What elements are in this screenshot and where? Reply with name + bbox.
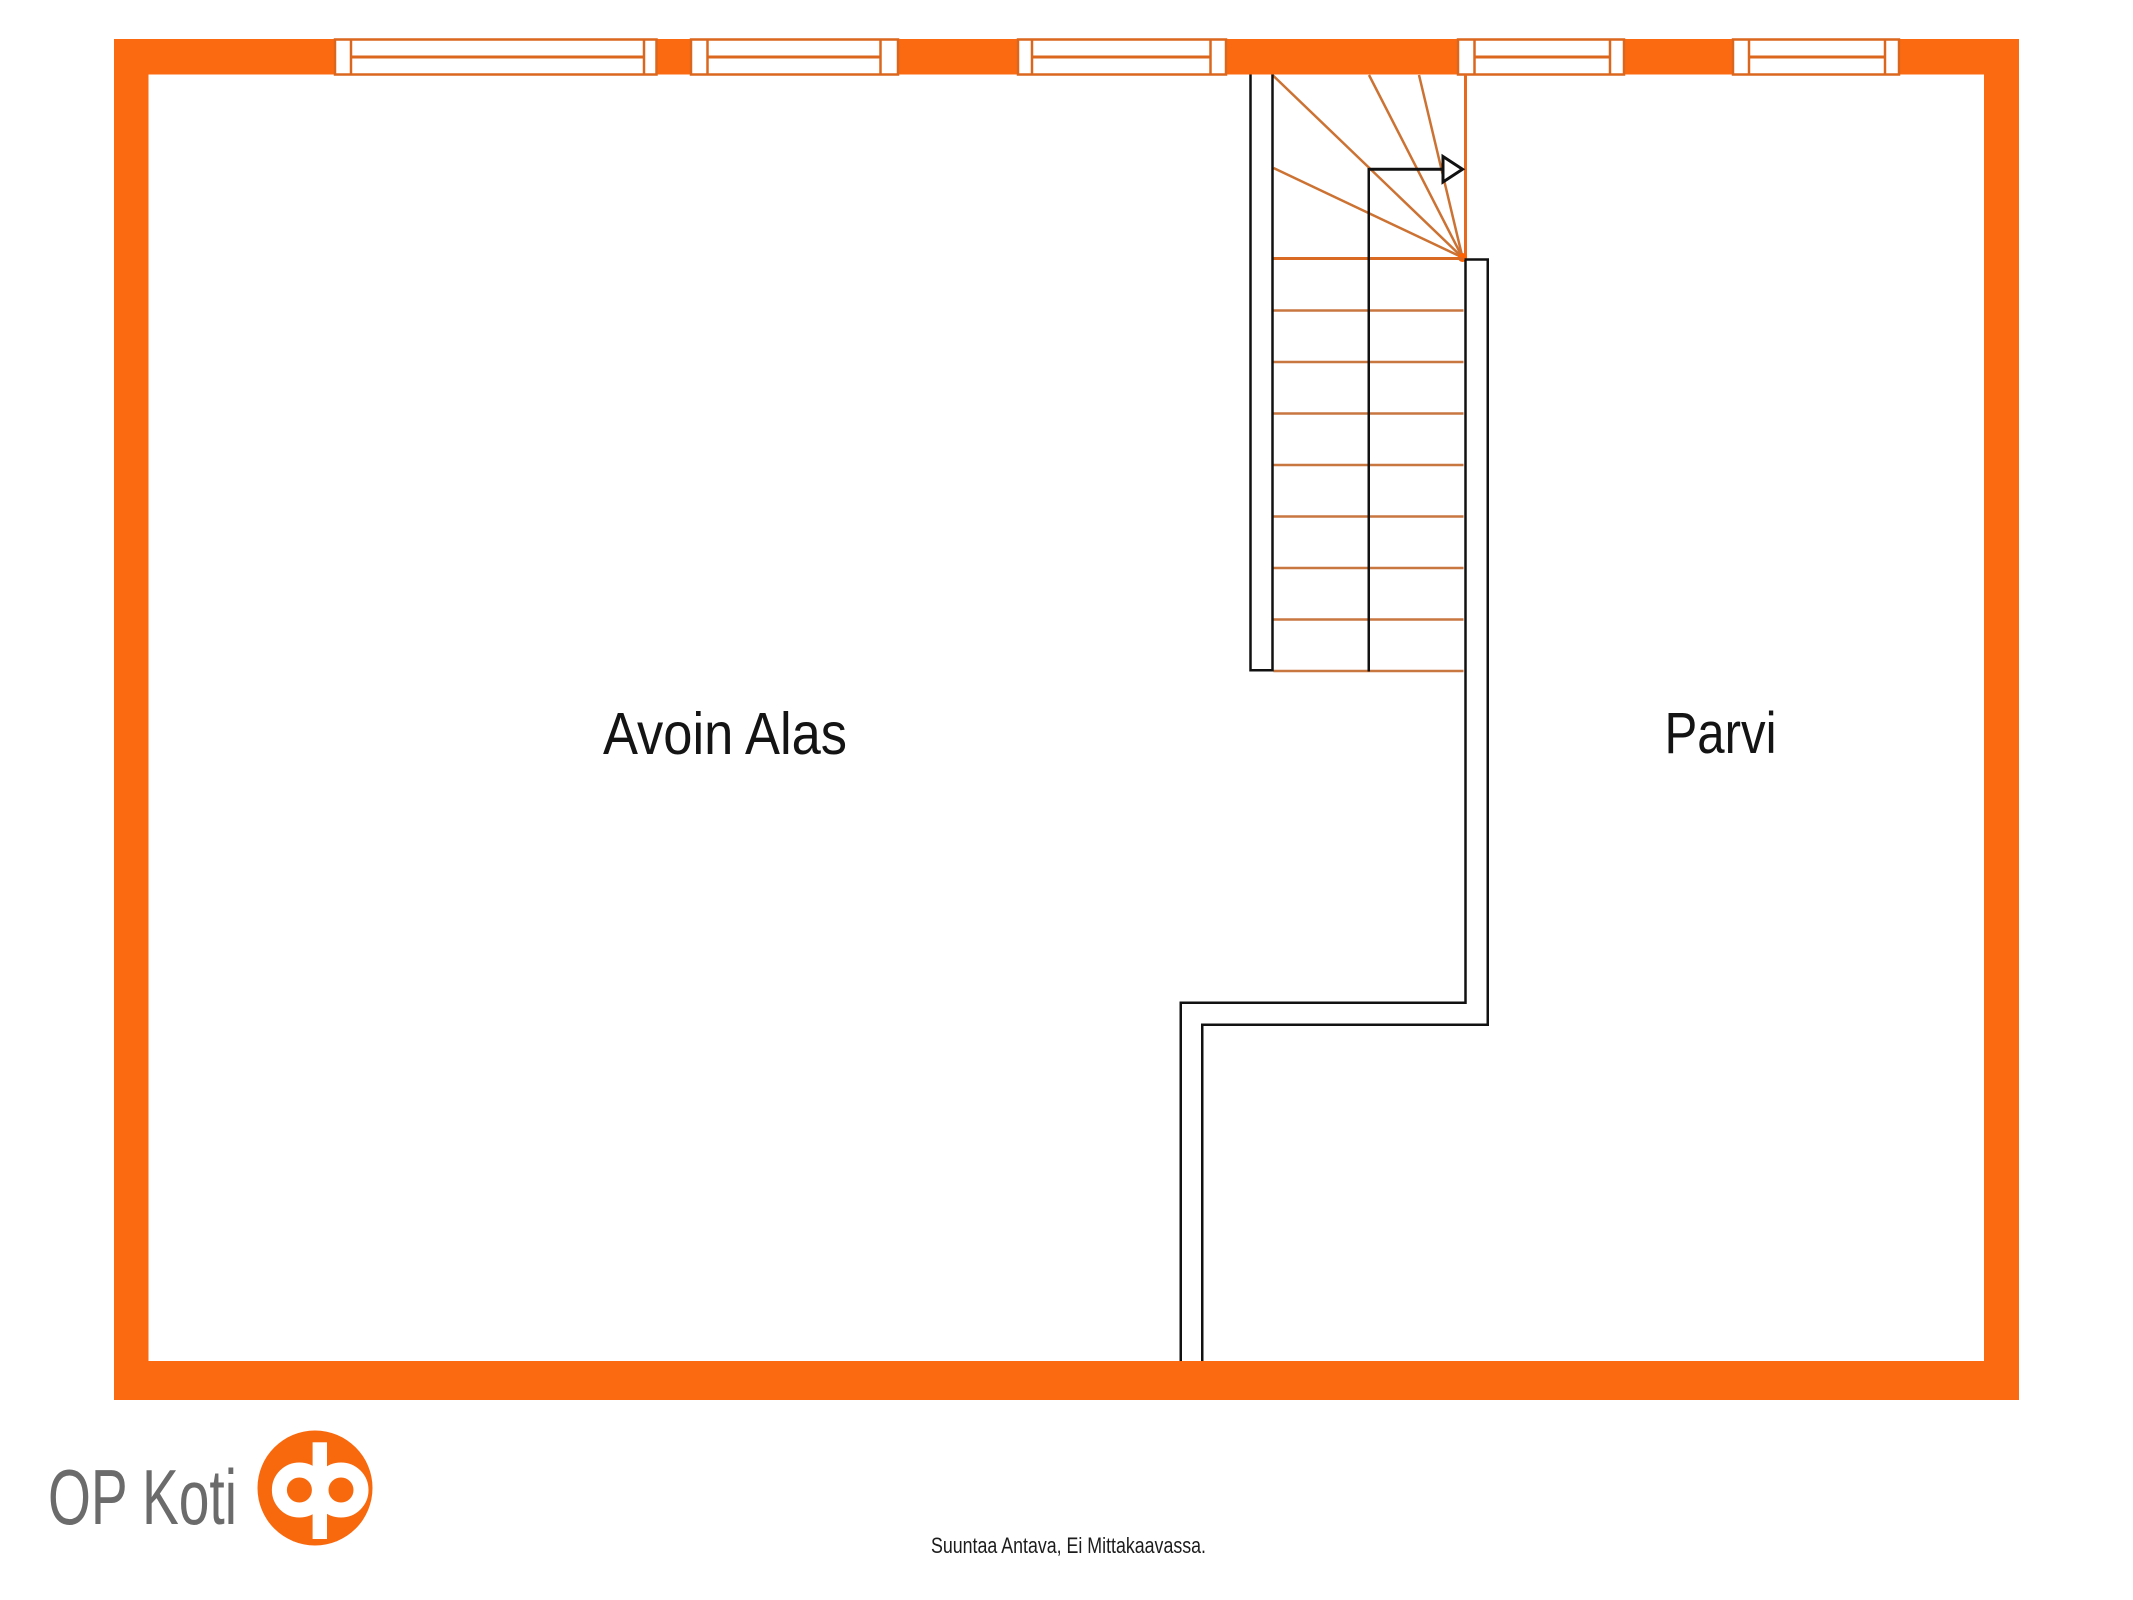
svg-text:Parvi: Parvi: [1665, 701, 1777, 766]
svg-text:Avoin Alas: Avoin Alas: [603, 701, 847, 767]
svg-text:OP Koti: OP Koti: [48, 1453, 237, 1541]
svg-text:Suuntaa Antava, Ei Mittakaavas: Suuntaa Antava, Ei Mittakaavassa.: [931, 1533, 1206, 1558]
